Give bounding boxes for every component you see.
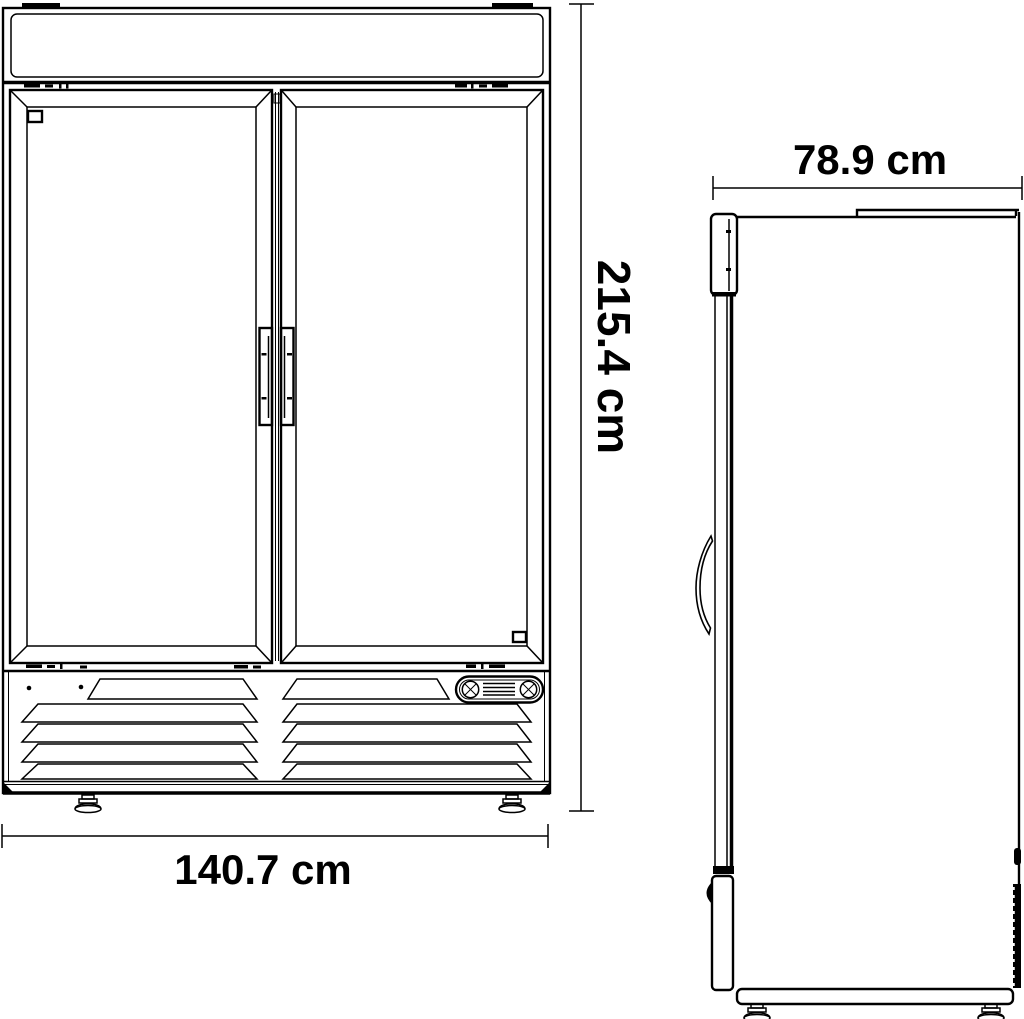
side-kick-panel [707, 876, 734, 990]
header-inner-panel [11, 14, 543, 77]
height-dimension: 215.4 cm [569, 4, 640, 811]
right-door-sticker [513, 632, 526, 642]
leveling-foot-side-back [978, 1004, 1004, 1019]
drawing-canvas: 215.4 cm 140.7 cm 78.9 cm [0, 0, 1024, 1019]
right-door-handle [281, 328, 294, 425]
side-top-hinge-bracket [711, 214, 737, 297]
depth-dimension-label: 78.9 cm [793, 136, 947, 183]
cabinet-outline [3, 8, 550, 793]
side-door-profile [713, 296, 734, 874]
louver-slats [22, 679, 531, 779]
header-sign-panel [3, 14, 550, 83]
front-base [3, 782, 550, 794]
leveling-foot-front-right [499, 795, 525, 813]
leveling-foot-front-left [75, 795, 101, 813]
left-door-handle [260, 328, 273, 425]
depth-dimension: 78.9 cm [713, 136, 1022, 200]
left-glass-door [10, 90, 272, 663]
bottom-hinge-strip [26, 664, 505, 669]
width-dimension: 140.7 cm [2, 824, 548, 893]
kick-panel-knob [707, 882, 713, 904]
right-door-glass [296, 107, 527, 646]
temperature-controller [456, 677, 543, 703]
leveling-foot-side-front [744, 1004, 770, 1019]
left-door-glass [27, 107, 256, 646]
height-dimension-label: 215.4 cm [588, 260, 640, 454]
side-bottom-rail [737, 989, 1013, 1004]
left-door-sticker [28, 111, 42, 122]
right-door-frame [281, 90, 543, 663]
grille-screw-dot [27, 686, 32, 691]
side-top-edge [737, 210, 1019, 217]
grille-screw-dot [79, 685, 84, 690]
center-mullion [274, 92, 280, 661]
right-glass-door [281, 90, 543, 663]
side-view [696, 210, 1021, 1019]
front-view [3, 3, 550, 813]
width-dimension-label: 140.7 cm [174, 846, 351, 893]
side-door-bottom-seal [713, 866, 734, 874]
refrigerator-dimension-drawing: 215.4 cm 140.7 cm 78.9 cm [0, 0, 1024, 1019]
side-door-handle [696, 536, 713, 634]
ventilation-grille [3, 671, 550, 781]
left-door-frame [10, 90, 272, 663]
